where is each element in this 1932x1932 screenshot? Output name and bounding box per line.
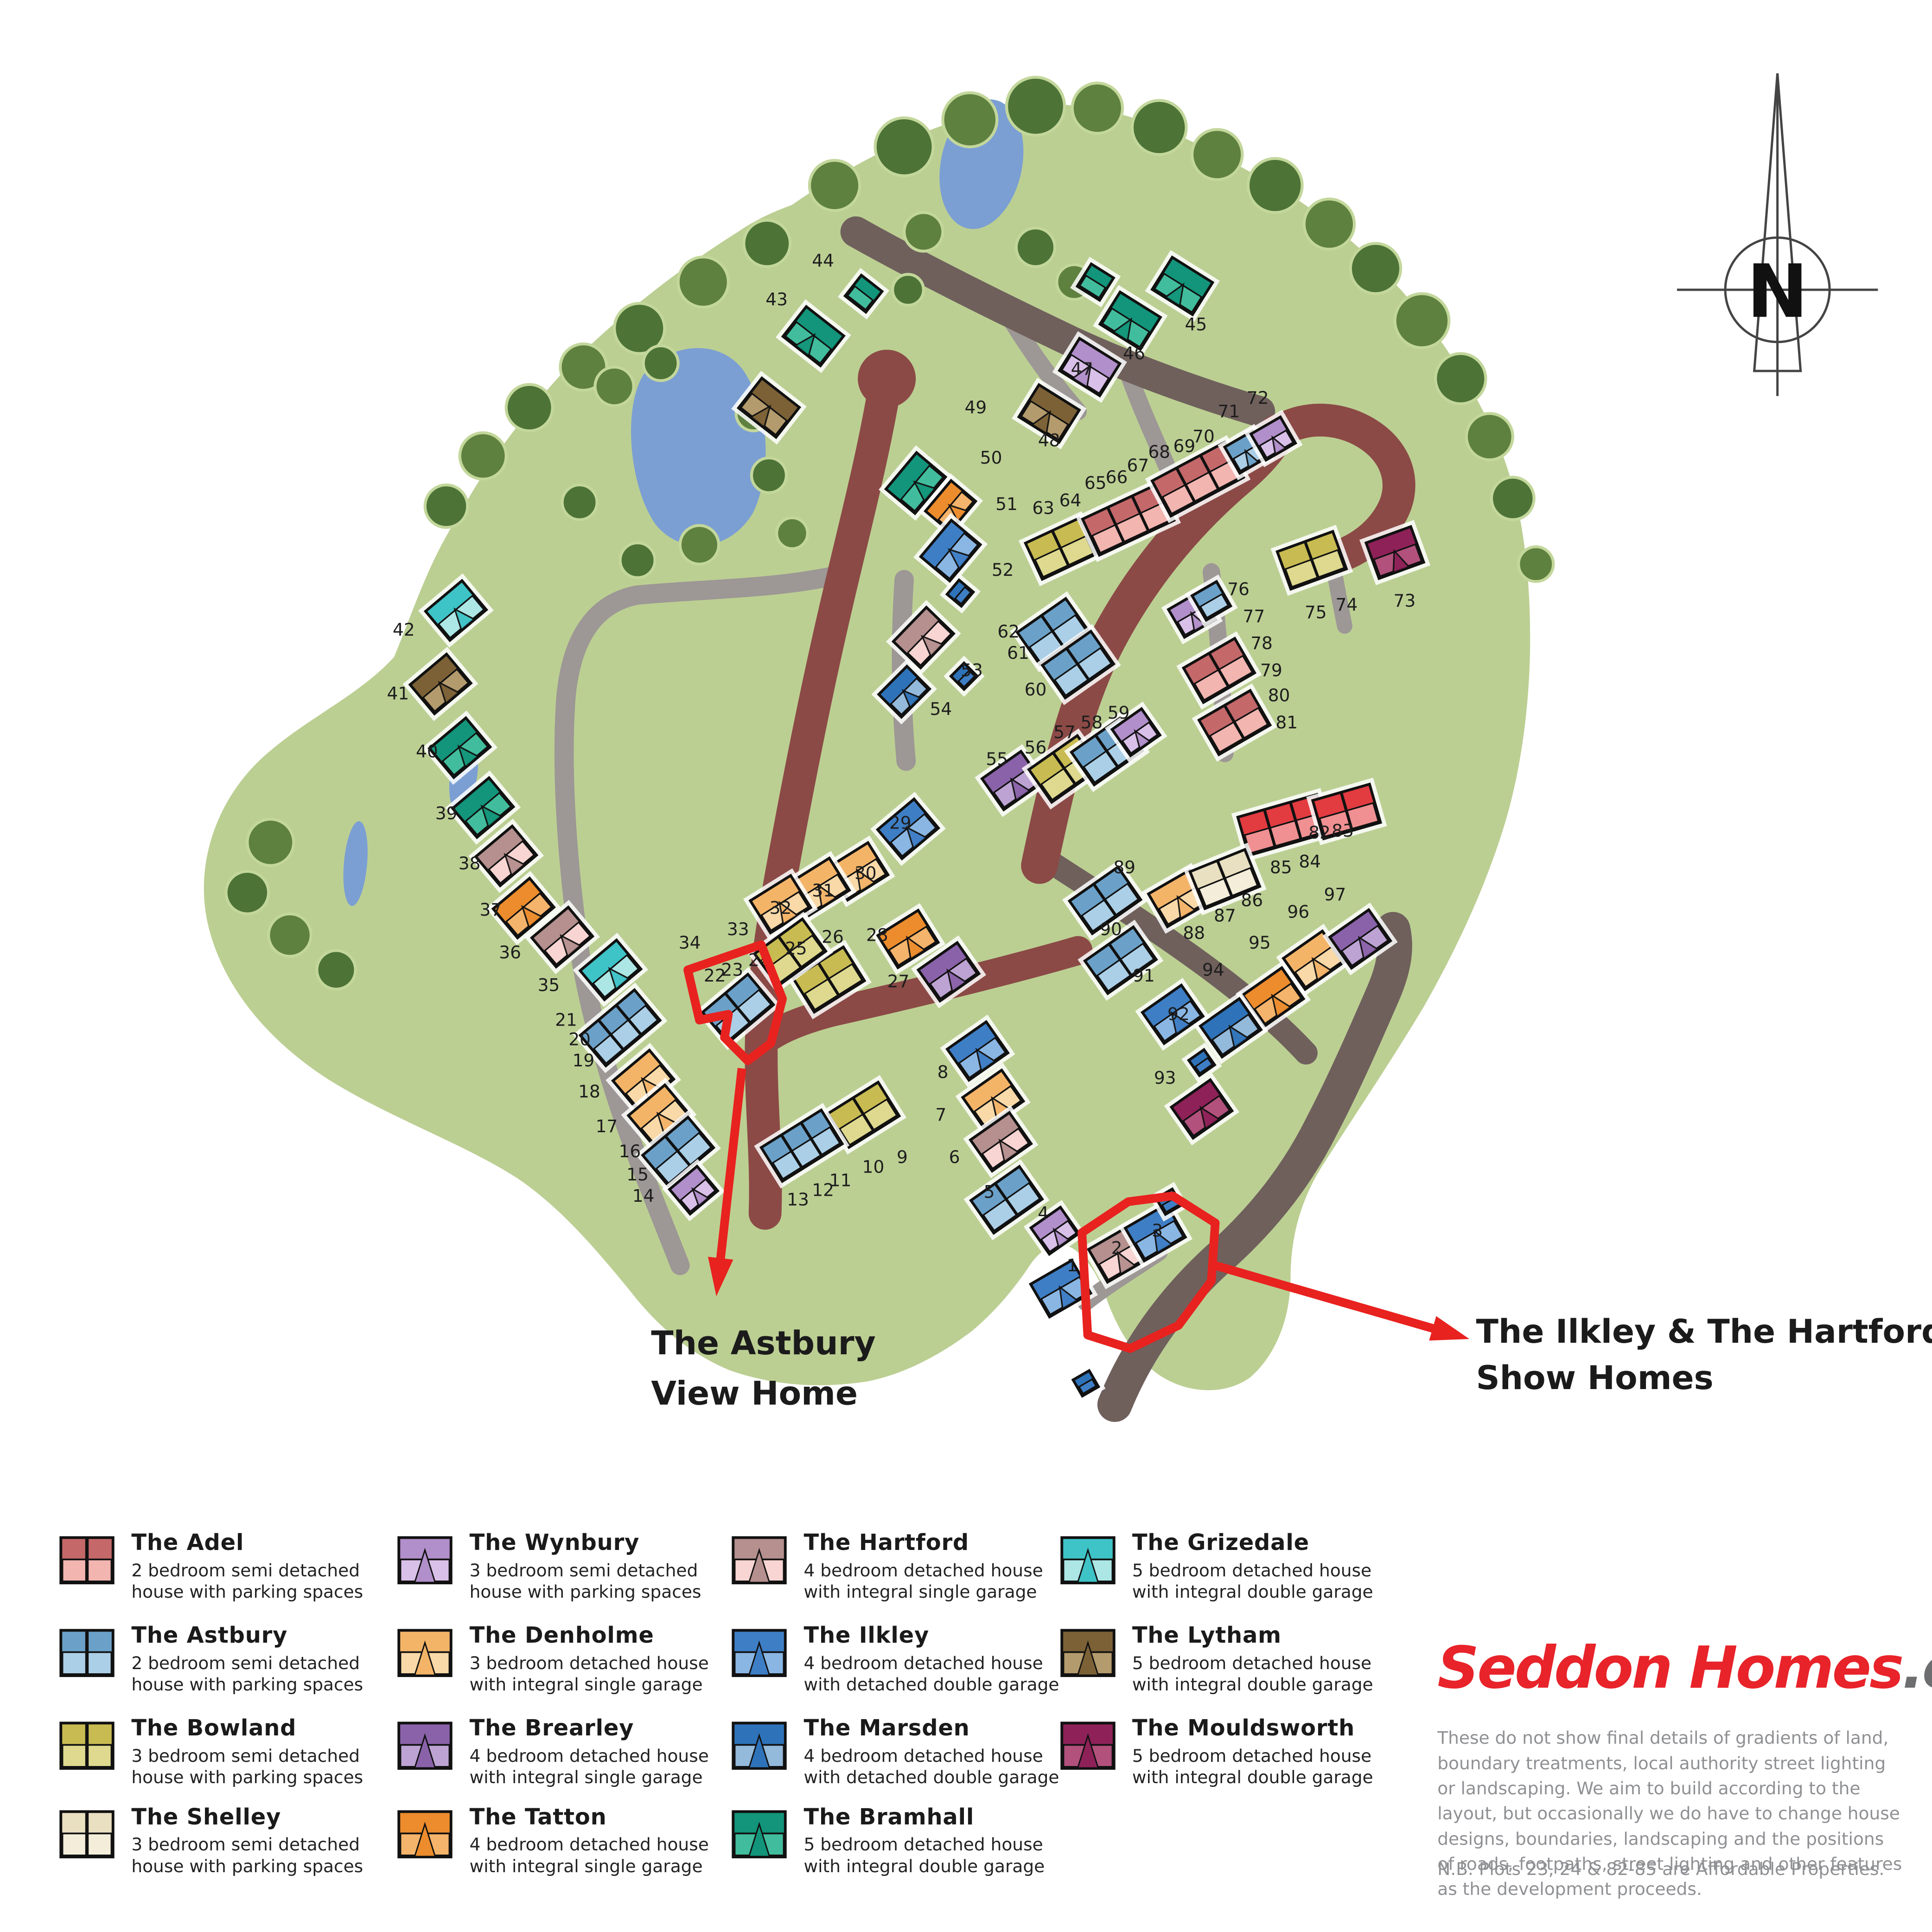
tree xyxy=(268,914,311,956)
tree xyxy=(810,160,860,210)
tree xyxy=(562,485,597,520)
plot-number: 62 xyxy=(997,621,1020,642)
plot-number: 46 xyxy=(1123,343,1145,363)
plot-number: 75 xyxy=(1305,602,1327,622)
mouldsworth-swatch-icon xyxy=(1059,1720,1117,1772)
tree xyxy=(1132,101,1186,155)
lytham-swatch-icon xyxy=(1059,1627,1117,1679)
plot-number: 77 xyxy=(1243,606,1265,626)
plot-number: 72 xyxy=(1247,388,1269,408)
plot-number: 12 xyxy=(812,1180,834,1200)
seddon-homes-logo: Seddon Homes.co.uk xyxy=(1437,1634,1913,1702)
plot-number: 53 xyxy=(961,660,983,680)
plot-number: 43 xyxy=(765,289,788,309)
plot-number: 49 xyxy=(964,397,987,418)
plot-number: 68 xyxy=(1148,442,1170,462)
plot-number: 93 xyxy=(1154,1068,1176,1088)
tree xyxy=(644,346,678,381)
ilkley-swatch-icon xyxy=(730,1627,788,1679)
legend-house-description: 4 bedroom detached house with detached d… xyxy=(803,1745,1070,1789)
legend-house-description: 3 bedroom semi detached house with parki… xyxy=(131,1834,398,1877)
legend-item-ilkley: The Ilkley4 bedroom detached house with … xyxy=(730,1623,1097,1696)
legend-item-hartford: The Hartford4 bedroom detached house wit… xyxy=(730,1530,1097,1603)
tree xyxy=(620,543,655,578)
plot-number: 95 xyxy=(1249,932,1271,953)
plot-number: 80 xyxy=(1268,685,1290,706)
plot-number: 67 xyxy=(1127,455,1149,476)
legend-house-name: The Brearley xyxy=(470,1715,763,1741)
legend-house-name: The Bowland xyxy=(131,1715,425,1741)
plot-number: 26 xyxy=(822,926,844,947)
legend-item-tatton: The Tatton4 bedroom detached house with … xyxy=(396,1804,763,1877)
wynbury-swatch-icon xyxy=(396,1534,454,1587)
tatton-swatch-icon xyxy=(396,1808,454,1861)
tree xyxy=(875,118,933,176)
plot-number: 16 xyxy=(619,1141,641,1161)
plot-number: 61 xyxy=(1007,643,1029,663)
plot-number: 52 xyxy=(992,560,1014,580)
legend-item-brearley: The Brearley4 bedroom detached house wit… xyxy=(396,1715,763,1788)
legend-house-description: 5 bedroom detached house with integral d… xyxy=(1132,1745,1399,1789)
branding-block: Seddon Homes.co.uk xyxy=(1437,1634,1913,1702)
plot-number: 64 xyxy=(1059,490,1082,510)
plot-number: 30 xyxy=(854,863,877,883)
plot-number: 40 xyxy=(416,741,438,761)
tree xyxy=(1395,293,1449,348)
plot-number: 23 xyxy=(721,959,743,980)
plot-number: 4 xyxy=(1038,1203,1049,1223)
site-plan-page: 1234567891011121314151617181920212223242… xyxy=(0,0,1932,1932)
plot-number: 38 xyxy=(459,853,481,874)
plot-number: 69 xyxy=(1173,436,1196,456)
plot-number: 63 xyxy=(1032,497,1054,518)
tree xyxy=(744,220,790,267)
legend-house-description: 4 bedroom detached house with integral s… xyxy=(803,1560,1070,1603)
legend-house-description: 2 bedroom semi detached house with parki… xyxy=(131,1560,398,1603)
tree xyxy=(1016,228,1055,267)
plot-number: 59 xyxy=(1108,702,1130,723)
annotation-label: View Home xyxy=(651,1374,858,1412)
legend-house-name: The Mouldsworth xyxy=(1132,1715,1426,1741)
plot-number: 56 xyxy=(1025,737,1047,758)
legend-house-name: The Ilkley xyxy=(803,1623,1097,1648)
plot-number: 92 xyxy=(1167,1004,1190,1024)
hartford-swatch-icon xyxy=(730,1534,788,1587)
svg-text:N: N xyxy=(1747,249,1808,334)
tree xyxy=(1192,129,1242,179)
plot-number: 42 xyxy=(393,619,415,640)
annotation-arrowhead-icon xyxy=(1429,1316,1469,1341)
plot-number: 37 xyxy=(480,899,502,920)
plot-number: 29 xyxy=(889,813,912,833)
plot-number: 41 xyxy=(387,683,409,703)
marsden-swatch-icon xyxy=(730,1720,788,1772)
tree xyxy=(678,257,728,307)
legend-house-name: The Adel xyxy=(131,1530,425,1556)
plot-number: 10 xyxy=(862,1156,885,1177)
tree xyxy=(1435,354,1486,404)
annotation-label: Show Homes xyxy=(1476,1358,1714,1397)
plot-number: 39 xyxy=(435,803,458,823)
plot-number: 58 xyxy=(1080,712,1103,733)
plot-number: 7 xyxy=(935,1104,946,1125)
tree xyxy=(1467,414,1513,460)
legend-house-name: The Bramhall xyxy=(803,1804,1097,1830)
tree xyxy=(1492,477,1534,520)
plot-number: 3 xyxy=(1152,1220,1163,1241)
legend-item-marsden: The Marsden4 bedroom detached house with… xyxy=(730,1715,1097,1788)
plot-number: 33 xyxy=(727,919,749,939)
legend-item-mouldsworth: The Mouldsworth5 bedroom detached house … xyxy=(1059,1715,1426,1788)
plot-number: 17 xyxy=(596,1116,618,1136)
tree xyxy=(1518,547,1553,581)
plot-number: 73 xyxy=(1394,590,1416,611)
plot-number: 89 xyxy=(1113,857,1135,877)
tree xyxy=(752,458,786,493)
plot-number: 20 xyxy=(568,1029,591,1049)
legend-item-bramhall: The Bramhall5 bedroom detached house wit… xyxy=(730,1804,1097,1877)
legend-item-shelley: The Shelley3 bedroom semi detached house… xyxy=(58,1804,425,1877)
tree xyxy=(943,93,997,147)
plot-number: 84 xyxy=(1299,851,1321,872)
plot-number: 88 xyxy=(1183,923,1205,943)
plot-number: 87 xyxy=(1214,905,1236,926)
tree xyxy=(1304,199,1354,249)
plot-number: 5 xyxy=(984,1182,995,1202)
plot-number: 83 xyxy=(1332,820,1354,841)
tree xyxy=(777,518,808,549)
tree xyxy=(460,433,506,479)
plot-number: 14 xyxy=(632,1186,655,1206)
plot-number: 91 xyxy=(1133,965,1155,986)
plot-number: 9 xyxy=(897,1147,908,1167)
legend-house-name: The Shelley xyxy=(131,1804,425,1830)
plot-number: 82 xyxy=(1308,822,1331,842)
plot-number: 48 xyxy=(1038,430,1060,451)
tree xyxy=(893,274,924,306)
north-compass-icon: N xyxy=(1677,73,1878,396)
legend-house-description: 5 bedroom detached house with integral d… xyxy=(803,1834,1070,1877)
legend-house-description: 4 bedroom detached house with detached d… xyxy=(803,1652,1070,1696)
plot-number: 78 xyxy=(1250,633,1273,653)
plot-number: 50 xyxy=(980,447,1002,468)
legend-item-wynbury: The Wynbury3 bedroom semi detached house… xyxy=(396,1530,763,1603)
legend-house-description: 4 bedroom detached house with integral s… xyxy=(470,1745,736,1789)
tree xyxy=(247,819,293,866)
legend-house-name: The Marsden xyxy=(803,1715,1097,1741)
plot-number: 8 xyxy=(937,1062,949,1082)
plot-number: 86 xyxy=(1241,890,1263,910)
legend-item-lytham: The Lytham5 bedroom detached house with … xyxy=(1059,1623,1426,1696)
tree xyxy=(506,384,553,431)
plot-number: 76 xyxy=(1227,579,1250,599)
tree xyxy=(680,525,719,564)
legend-item-astbury: The Astbury2 bedroom semi detached house… xyxy=(58,1623,425,1696)
bowland-swatch-icon xyxy=(58,1720,116,1772)
legend-house-description: 5 bedroom detached house with integral d… xyxy=(1132,1652,1399,1696)
tree xyxy=(1007,77,1065,135)
legend-item-bowland: The Bowland3 bedroom semi detached house… xyxy=(58,1715,425,1788)
brearley-swatch-icon xyxy=(396,1720,454,1772)
plot-number: 57 xyxy=(1053,722,1076,742)
cul-de-sac-bulb xyxy=(858,350,916,408)
plot-number: 65 xyxy=(1084,472,1107,493)
legend-house-description: 3 bedroom semi detached house with parki… xyxy=(470,1560,736,1603)
plot-number: 21 xyxy=(555,1010,577,1030)
astbury-swatch-icon xyxy=(58,1627,116,1679)
legend-house-description: 2 bedroom semi detached house with parki… xyxy=(131,1652,398,1696)
plot-number: 44 xyxy=(812,250,834,271)
plot-number: 97 xyxy=(1324,884,1346,905)
plot-number: 70 xyxy=(1192,426,1215,446)
legend-item-grizedale: The Grizedale5 bedroom detached house wi… xyxy=(1059,1530,1426,1603)
tree xyxy=(1248,159,1302,213)
legend-item-denholme: The Denholme3 bedroom detached house wit… xyxy=(396,1623,763,1696)
plot-number: 71 xyxy=(1218,401,1240,421)
plot-number: 74 xyxy=(1336,594,1358,615)
legend-house-name: The Wynbury xyxy=(470,1530,763,1556)
plot-number: 31 xyxy=(812,880,834,900)
plot-number: 1 xyxy=(1067,1255,1078,1275)
grizedale-swatch-icon xyxy=(1059,1534,1117,1587)
legend-house-name: The Tatton xyxy=(470,1804,763,1830)
annotation-label: The Astbury xyxy=(651,1324,876,1362)
adel-swatch-icon xyxy=(58,1534,116,1587)
plot-number: 66 xyxy=(1106,467,1128,487)
plot-number: 19 xyxy=(573,1050,595,1071)
logo-brand-text: Seddon Homes xyxy=(1437,1634,1902,1702)
tree xyxy=(904,212,943,251)
plot-number: 55 xyxy=(986,749,1008,769)
tree xyxy=(226,871,269,914)
tree xyxy=(595,367,633,406)
plot-number: 36 xyxy=(499,942,521,963)
plot-number: 27 xyxy=(887,971,910,991)
plot-number: 96 xyxy=(1287,901,1309,922)
plot-number: 79 xyxy=(1260,660,1282,680)
plot-number: 54 xyxy=(930,699,952,719)
legend-house-name: The Grizedale xyxy=(1132,1530,1426,1556)
tree xyxy=(317,950,355,989)
legend-house-description: 3 bedroom detached house with integral s… xyxy=(470,1652,736,1696)
legend-house-description: 4 bedroom detached house with integral s… xyxy=(470,1834,736,1877)
plot-number: 25 xyxy=(785,938,807,958)
legend-house-description: 3 bedroom semi detached house with parki… xyxy=(131,1745,398,1789)
affordable-properties-note: N.B. Plots 23, 24 & 82-85 are Affordable… xyxy=(1437,1859,1905,1879)
legend-house-description: 5 bedroom detached house with integral d… xyxy=(1132,1560,1399,1603)
tree xyxy=(1072,83,1122,133)
plot-number: 15 xyxy=(626,1164,649,1185)
plot-number: 90 xyxy=(1100,919,1122,939)
plot-number: 47 xyxy=(1071,358,1093,379)
bramhall-swatch-icon xyxy=(730,1808,788,1861)
legend-item-adel: The Adel2 bedroom semi detached house wi… xyxy=(58,1530,425,1603)
denholme-swatch-icon xyxy=(396,1627,454,1679)
plot-number: 34 xyxy=(679,932,701,953)
plot-number: 2 xyxy=(1111,1237,1122,1258)
tree xyxy=(425,485,468,528)
legend-house-name: The Astbury xyxy=(131,1623,425,1648)
legend-house-name: The Hartford xyxy=(803,1530,1097,1556)
legend-house-name: The Lytham xyxy=(1132,1623,1426,1648)
plot-number: 13 xyxy=(787,1189,809,1210)
plot-number: 45 xyxy=(1185,314,1207,335)
legend-house-name: The Denholme xyxy=(470,1623,763,1648)
plot-number: 81 xyxy=(1275,712,1298,733)
plot-number: 51 xyxy=(995,494,1018,514)
logo-domain-text: .co.uk xyxy=(1902,1634,1932,1702)
plot-number: 6 xyxy=(949,1147,960,1167)
plot-number: 35 xyxy=(538,975,560,995)
tree xyxy=(1351,243,1401,293)
plot-number: 94 xyxy=(1202,959,1224,980)
plot-number: 85 xyxy=(1270,857,1292,877)
plot-number: 32 xyxy=(770,898,792,918)
annotation-label: The Ilkley & The Hartford xyxy=(1476,1312,1932,1351)
plot-number: 28 xyxy=(866,925,888,945)
shelley-swatch-icon xyxy=(58,1808,116,1861)
plot-number: 60 xyxy=(1025,679,1047,700)
plot-number: 18 xyxy=(578,1081,600,1102)
